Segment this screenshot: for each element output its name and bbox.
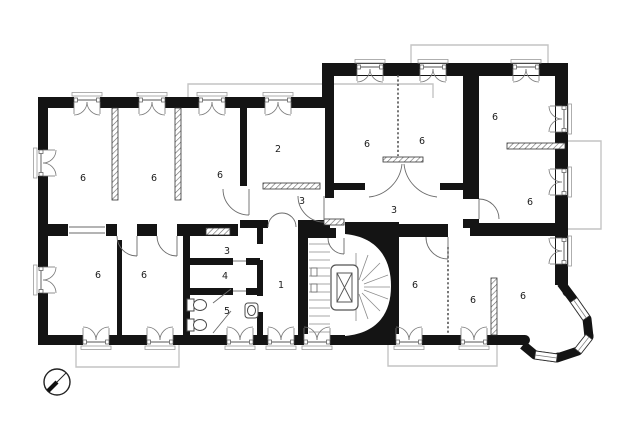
room-label: 6	[80, 173, 86, 184]
room-label: 1	[278, 280, 284, 291]
room-label: 3	[391, 205, 397, 216]
wc-fixtures	[187, 299, 258, 331]
room-label: 2	[275, 144, 281, 155]
room-label: 6	[492, 112, 498, 123]
room-label: 6	[151, 173, 157, 184]
room-label: 6	[141, 270, 147, 281]
floor-plan-svg: 6 6 6 2 6 6 6 6 3 3 3 4 5 1 6 6 6 6 6	[0, 0, 630, 446]
room-label: 6	[527, 197, 533, 208]
bay-window	[520, 283, 594, 362]
interior-walls	[48, 75, 567, 345]
room-label: 6	[520, 291, 526, 302]
toilet-icon	[187, 319, 207, 331]
room-label: 6	[412, 280, 418, 291]
washbasin-icon	[245, 303, 258, 318]
room-label: 4	[222, 271, 228, 282]
room-label: 6	[95, 270, 101, 281]
north-arrow-icon	[44, 369, 70, 395]
room-label: 6	[470, 295, 476, 306]
room-label: 6	[419, 136, 425, 147]
room-label: 5	[224, 306, 230, 317]
elevator	[311, 265, 358, 310]
room-label: 6	[364, 139, 370, 150]
room-label: 6	[217, 170, 223, 181]
toilet-icon	[187, 299, 207, 311]
room-label: 3	[224, 246, 230, 257]
room-label: 3	[299, 196, 305, 207]
floor-plan-page: 6 6 6 2 6 6 6 6 3 3 3 4 5 1 6 6 6 6 6	[0, 0, 630, 446]
